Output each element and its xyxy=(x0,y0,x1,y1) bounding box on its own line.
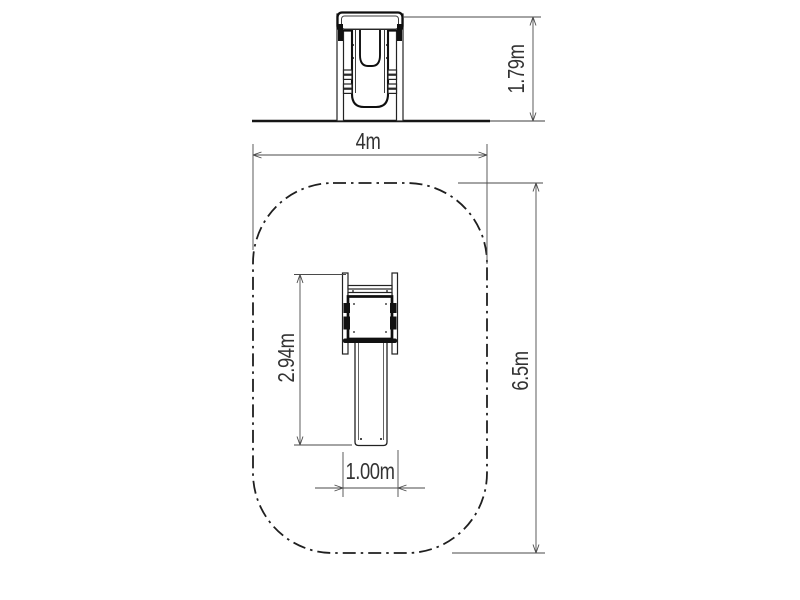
bolt-dot xyxy=(353,303,355,305)
technical-drawing: 1.79m xyxy=(0,0,800,600)
plan-top-crossbar xyxy=(348,286,392,290)
bolt-dot xyxy=(385,303,387,305)
dim-height-label: 1.79m xyxy=(504,44,529,93)
plan-clamp xyxy=(344,317,351,330)
bolt-dot xyxy=(399,37,401,39)
rung xyxy=(344,89,353,93)
dimension-zone-length: 6.5m xyxy=(452,183,545,553)
rung xyxy=(344,84,353,88)
bolt-dot xyxy=(360,438,362,440)
bolt-dot xyxy=(386,44,388,46)
plan-clamp xyxy=(344,303,351,313)
dimension-equipment-length: 2.94m xyxy=(274,275,352,446)
bolt-dot xyxy=(339,37,341,39)
rung xyxy=(388,84,397,88)
bolt-dot xyxy=(352,57,354,59)
elevation-view xyxy=(252,13,545,122)
equipment-plan xyxy=(343,273,398,446)
plan-clamp xyxy=(390,303,397,313)
bolt-dot xyxy=(385,331,387,333)
rung xyxy=(344,75,353,79)
bolt-dot xyxy=(386,290,388,292)
drawing-canvas: 1.79m xyxy=(0,0,800,600)
dim-zone-length-label: 6.5m xyxy=(508,351,533,390)
rung xyxy=(344,70,353,74)
rung xyxy=(388,70,397,74)
bolt-dot xyxy=(380,438,382,440)
dim-zone-width-label: 4m xyxy=(356,129,381,154)
plan-chute-outline xyxy=(355,343,387,446)
dim-equipment-length-label: 2.94m xyxy=(274,333,299,382)
rung xyxy=(388,75,397,79)
dimension-height: 1.79m xyxy=(404,17,541,121)
plan-clamp xyxy=(390,317,397,330)
dimension-equipment-width: 1.00m xyxy=(315,450,425,497)
bolt-dot xyxy=(386,57,388,59)
bolt-dot xyxy=(353,331,355,333)
chute-inner-profile xyxy=(360,30,380,66)
plan-bottom-beam xyxy=(343,339,397,344)
elevation-top-bar xyxy=(338,13,403,31)
rung xyxy=(388,89,397,93)
bolt-dot xyxy=(352,290,354,292)
bolt-dot xyxy=(352,44,354,46)
dim-equipment-width-label: 1.00m xyxy=(345,459,394,484)
